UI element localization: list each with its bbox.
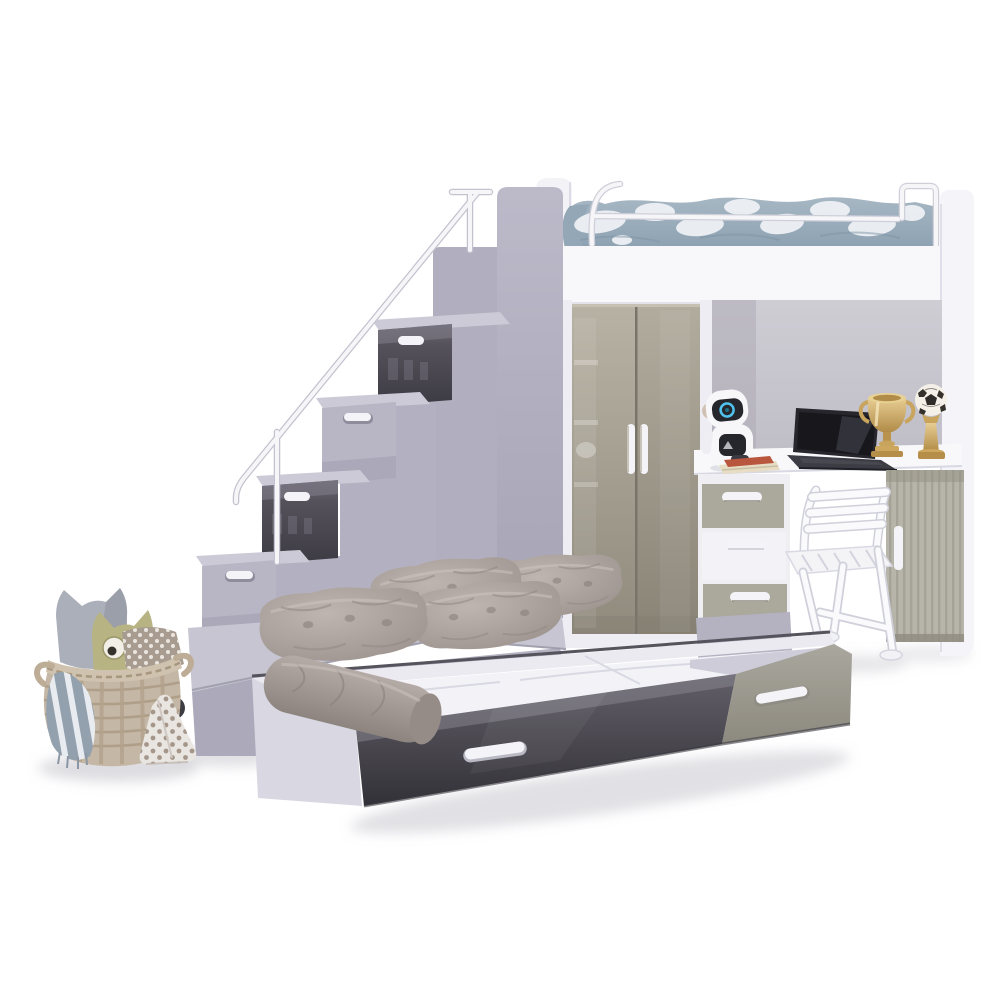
desk-drawer-middle bbox=[702, 532, 786, 580]
cabinet-handle bbox=[894, 526, 903, 570]
scene-svg bbox=[0, 0, 1000, 1000]
shutter-cabinet bbox=[886, 470, 964, 642]
camouflage-bedding bbox=[563, 197, 938, 252]
desk-drawer-top bbox=[702, 484, 784, 528]
basket-corner bbox=[37, 588, 196, 769]
upper-bunk-bed bbox=[536, 178, 952, 308]
product-photo-stage bbox=[0, 0, 1000, 1000]
stair-column-tall bbox=[497, 187, 563, 618]
bed-fascia bbox=[560, 246, 952, 306]
